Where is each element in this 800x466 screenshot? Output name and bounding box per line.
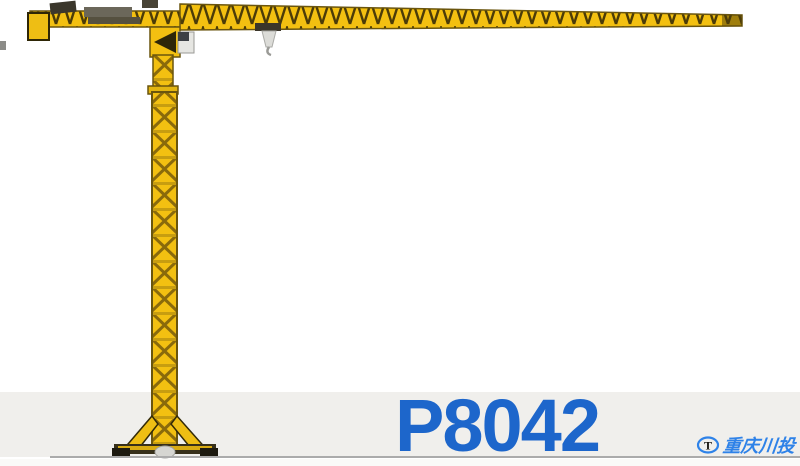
counterweight: [28, 13, 49, 40]
crane-turret: [150, 27, 180, 57]
trolley-and-hook: [255, 23, 281, 55]
product-showcase: P8042 T 重庆川投: [0, 0, 800, 466]
hook-block: [262, 31, 276, 47]
cab-window: [178, 32, 189, 41]
operator-cab: [178, 32, 194, 53]
crane-mast: [148, 55, 178, 447]
hook: [267, 47, 271, 55]
machinery-deck: [84, 7, 132, 17]
brand-logo: T 重庆川投: [696, 432, 795, 458]
jib-tip: [722, 15, 742, 26]
brand-logo-mark: T: [696, 435, 720, 455]
product-model-text: P8042: [390, 389, 604, 463]
trolley: [255, 23, 281, 31]
brand-logo-text: 重庆川投: [722, 432, 797, 458]
brand-logo-letter: T: [704, 439, 712, 453]
